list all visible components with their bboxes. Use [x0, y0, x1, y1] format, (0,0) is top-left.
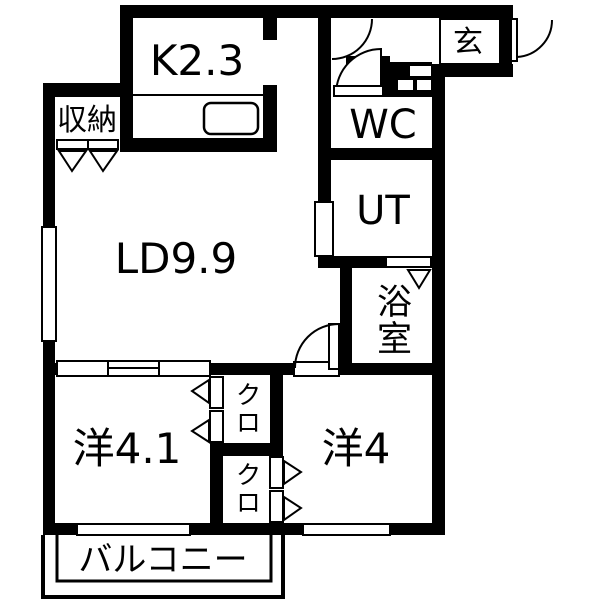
label-entrance: 玄 [453, 25, 483, 60]
wall-kitchen-right-upper [263, 18, 277, 40]
floor-plan-canvas: K2.3 LD9.9 収納 玄 WC UT 浴室 洋4.1 洋4 クロ クロ バ… [0, 0, 600, 600]
label-kitchen: K2.3 [150, 36, 244, 85]
wall-right [432, 64, 445, 535]
shoe-cabinet-cell-3 [416, 79, 432, 91]
shoe-cabinet-cell-1 [409, 65, 432, 77]
wall-closet-left [210, 443, 223, 535]
wall-storage-top [43, 83, 120, 97]
window-bottom-right-room [303, 524, 390, 535]
wall-hall-divider [318, 18, 331, 210]
closet-lower-door-panel-2 [270, 491, 283, 522]
wall-genkan-bottom [432, 64, 513, 77]
bath-door-track [386, 257, 431, 267]
kitchen-sink [204, 103, 258, 134]
label-western-room-right: 洋4 [322, 424, 391, 473]
shoe-cabinet-cell-2 [397, 79, 414, 91]
label-utility: UT [356, 188, 410, 234]
ld-room-door-leaf [329, 324, 339, 369]
window-bottom-left-room [77, 524, 190, 535]
wall-bath-left [340, 268, 352, 363]
label-toilet: WC [349, 102, 416, 148]
wall-closet-upper-right [270, 375, 283, 443]
label-living-dining: LD9.9 [115, 234, 238, 283]
window-left [42, 227, 56, 341]
wall-left-upper [43, 97, 55, 227]
wall-kitchen-right-lower [263, 85, 277, 152]
label-closet-lower: クロ [231, 461, 261, 517]
label-balcony: バルコニー [78, 540, 247, 580]
label-storage: 収納 [57, 103, 117, 138]
label-western-room-left: 洋4.1 [73, 424, 182, 473]
closet-lower-door-panel-1 [270, 457, 283, 488]
wall-top [120, 5, 513, 18]
wc-door-threshold [334, 86, 383, 96]
label-closet-upper: クロ [231, 381, 261, 437]
wall-wc-ut-divider [331, 148, 432, 160]
wall-kitchen-left [120, 5, 133, 152]
wall-kitchen-bottom [120, 138, 277, 152]
closet-upper-door-panel-1 [210, 377, 223, 408]
ut-door [315, 202, 333, 256]
wall-closet-divider [210, 443, 283, 456]
entrance-door-leaf [511, 19, 517, 61]
closet-upper-door-panel-2 [210, 411, 223, 442]
floor-plan: K2.3 LD9.9 収納 玄 WC UT 浴室 洋4.1 洋4 クロ クロ バ… [0, 0, 600, 600]
label-bathroom: 浴室 [371, 283, 411, 357]
